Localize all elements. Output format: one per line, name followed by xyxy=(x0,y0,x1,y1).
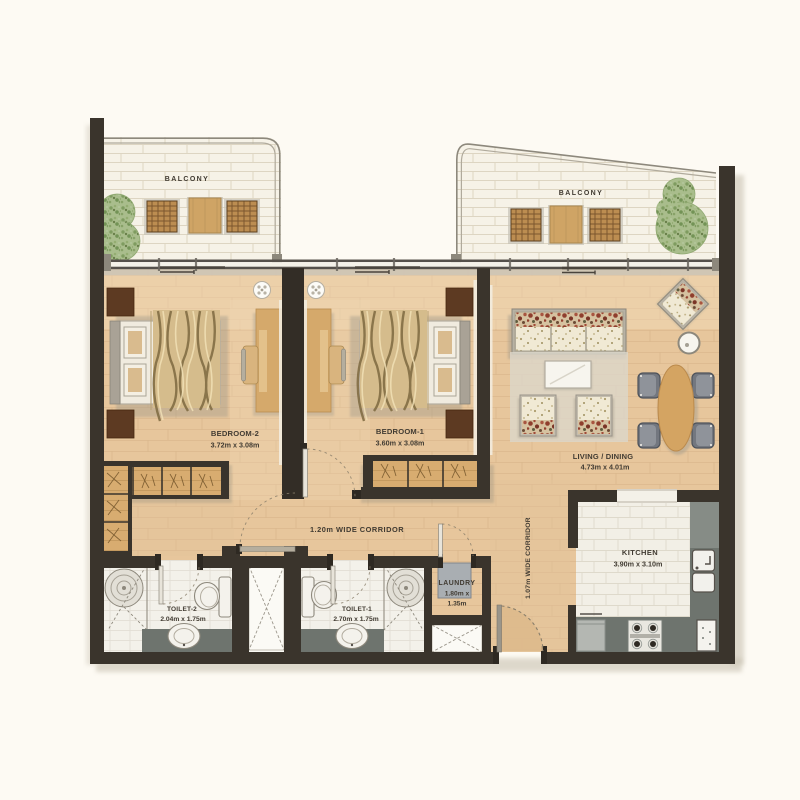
svg-text:4.73m x 4.01m: 4.73m x 4.01m xyxy=(581,463,630,472)
svg-text:KITCHEN: KITCHEN xyxy=(622,548,658,557)
svg-text:BEDROOM-1: BEDROOM-1 xyxy=(376,427,425,436)
svg-text:1.20m WIDE CORRIDOR: 1.20m WIDE CORRIDOR xyxy=(310,525,404,534)
svg-text:LAUNDRY: LAUNDRY xyxy=(439,580,476,587)
svg-text:3.90m x 3.10m: 3.90m x 3.10m xyxy=(614,560,663,569)
svg-text:1.35m: 1.35m xyxy=(448,601,467,608)
svg-text:1.07m WIDE CORRIDOR: 1.07m WIDE CORRIDOR xyxy=(525,517,532,599)
svg-text:TOILET-2: TOILET-2 xyxy=(167,606,197,613)
svg-text:2.04m x 1.75m: 2.04m x 1.75m xyxy=(160,616,205,623)
svg-text:TOILET-1: TOILET-1 xyxy=(342,606,372,613)
svg-text:1.80m x: 1.80m x xyxy=(445,591,470,598)
svg-text:BALCONY: BALCONY xyxy=(165,176,209,183)
svg-text:LIVING / DINING: LIVING / DINING xyxy=(573,452,634,461)
svg-text:3.72m x 3.08m: 3.72m x 3.08m xyxy=(211,441,260,450)
svg-text:BALCONY: BALCONY xyxy=(559,190,603,197)
svg-text:3.60m x 3.08m: 3.60m x 3.08m xyxy=(376,439,425,448)
svg-text:2.70m x 1.75m: 2.70m x 1.75m xyxy=(333,616,378,623)
svg-text:BEDROOM-2: BEDROOM-2 xyxy=(211,429,259,438)
